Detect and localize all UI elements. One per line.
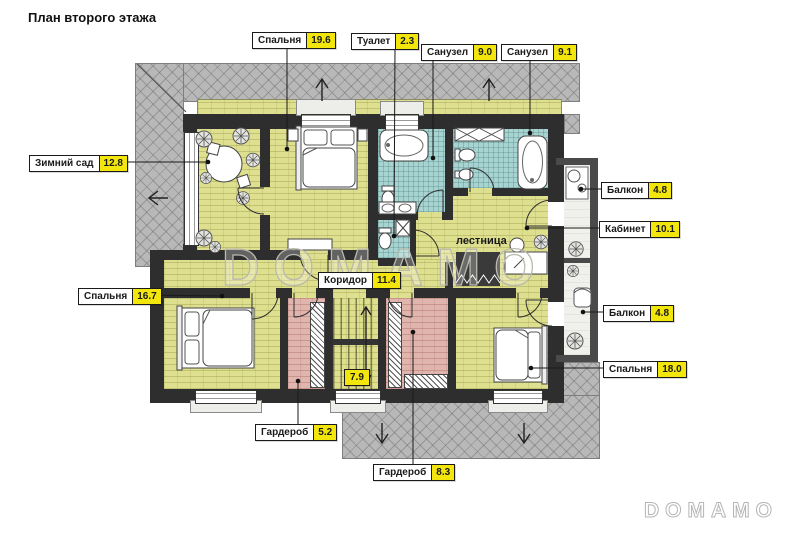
room-name: Балкон xyxy=(602,183,648,198)
wall xyxy=(548,326,564,403)
watermark-corner: DOMAMO xyxy=(644,499,778,523)
roof-top-right xyxy=(564,114,580,134)
wall xyxy=(492,188,548,196)
room-area: 11.4 xyxy=(372,273,400,288)
room-name: Спальня xyxy=(253,33,306,48)
text-stairs: лестница xyxy=(456,235,507,247)
page-title: План второго этажа xyxy=(28,10,156,25)
window xyxy=(335,390,381,404)
room-name: Спальня xyxy=(79,289,132,304)
room-area: 18.0 xyxy=(657,362,685,377)
wall xyxy=(453,188,468,196)
room-area: 8.3 xyxy=(431,465,454,480)
room-area: 5.2 xyxy=(313,425,336,440)
badge-stairs-area: 7.9 xyxy=(344,369,370,386)
wall xyxy=(150,250,164,403)
stairs-rail xyxy=(333,339,378,345)
wall xyxy=(260,129,270,187)
wardrobe-shelf xyxy=(310,302,325,388)
room-name: Балкон xyxy=(604,306,650,321)
wall xyxy=(548,226,564,302)
label-balcony-top: Балкон 4.8 xyxy=(601,182,672,199)
wall xyxy=(325,298,333,389)
label-toilet: Туалет 2.3 xyxy=(351,33,419,50)
window xyxy=(385,114,419,131)
room-name: Туалет xyxy=(352,34,395,49)
floor-plan-page: План второго этажа xyxy=(0,0,800,533)
roof-bottom-right xyxy=(561,362,600,396)
watermark-center: DOMAMO xyxy=(222,238,549,298)
label-wardrobe-right: Гардероб 8.3 xyxy=(373,464,455,481)
room-name: Кабинет xyxy=(600,222,650,237)
room-area: 19.6 xyxy=(306,33,334,48)
balcony-rim xyxy=(556,355,598,362)
balcony-rim xyxy=(590,158,598,362)
balcony-divider xyxy=(564,258,590,263)
room-name: Зимний сад xyxy=(30,156,99,171)
label-bedroom-top: Спальня 19.6 xyxy=(252,32,336,49)
room-area: 4.8 xyxy=(648,183,671,198)
room-name: Гардероб xyxy=(256,425,313,440)
window xyxy=(493,390,543,404)
room-name: Коридор xyxy=(319,273,372,288)
label-winter-garden: Зимний сад 12.8 xyxy=(29,155,128,172)
wall xyxy=(280,298,288,389)
label-office: Кабинет 10.1 xyxy=(599,221,680,238)
label-bathroom-2: Санузел 9.1 xyxy=(501,44,577,61)
label-bathroom-1: Санузел 9.0 xyxy=(421,44,497,61)
wall xyxy=(445,196,453,216)
roof-top xyxy=(135,63,580,102)
wardrobe-shelf xyxy=(404,374,448,389)
room-area: 10.1 xyxy=(650,222,678,237)
room-area: 2.3 xyxy=(395,34,418,49)
wall xyxy=(448,298,456,389)
window xyxy=(195,390,257,404)
label-wardrobe-left: Гардероб 5.2 xyxy=(255,424,337,441)
floor-bathroom-2 xyxy=(453,129,548,188)
room-area: 16.7 xyxy=(132,289,160,304)
room-area: 12.8 xyxy=(99,156,127,171)
room-name: Санузел xyxy=(502,45,553,60)
wall xyxy=(378,212,418,220)
wall xyxy=(183,114,564,129)
floor-balcony-bottom xyxy=(564,263,590,355)
room-area: 9.1 xyxy=(553,45,576,60)
wall xyxy=(445,129,453,196)
room-name: Санузел xyxy=(422,45,473,60)
label-corridor: Коридор 11.4 xyxy=(318,272,401,289)
room-area: 4.8 xyxy=(650,306,673,321)
roof-left xyxy=(135,63,184,267)
wall xyxy=(183,114,197,132)
floor-balcony-top xyxy=(564,165,590,258)
wall xyxy=(378,298,386,389)
label-bedroom-left: Спальня 16.7 xyxy=(78,288,162,305)
balcony-door-opening xyxy=(549,302,563,326)
balcony-door-opening xyxy=(549,202,563,226)
wardrobe-shelf xyxy=(388,302,402,388)
room-name: Гардероб xyxy=(374,465,431,480)
window xyxy=(301,114,351,131)
floor-bathroom-1 xyxy=(378,129,445,212)
label-bedroom-right: Спальня 18.0 xyxy=(603,361,687,378)
room-area: 9.0 xyxy=(473,45,496,60)
room-name: Спальня xyxy=(604,362,657,377)
label-balcony-bottom: Балкон 4.8 xyxy=(603,305,674,322)
winter-garden-glazing xyxy=(184,132,199,246)
